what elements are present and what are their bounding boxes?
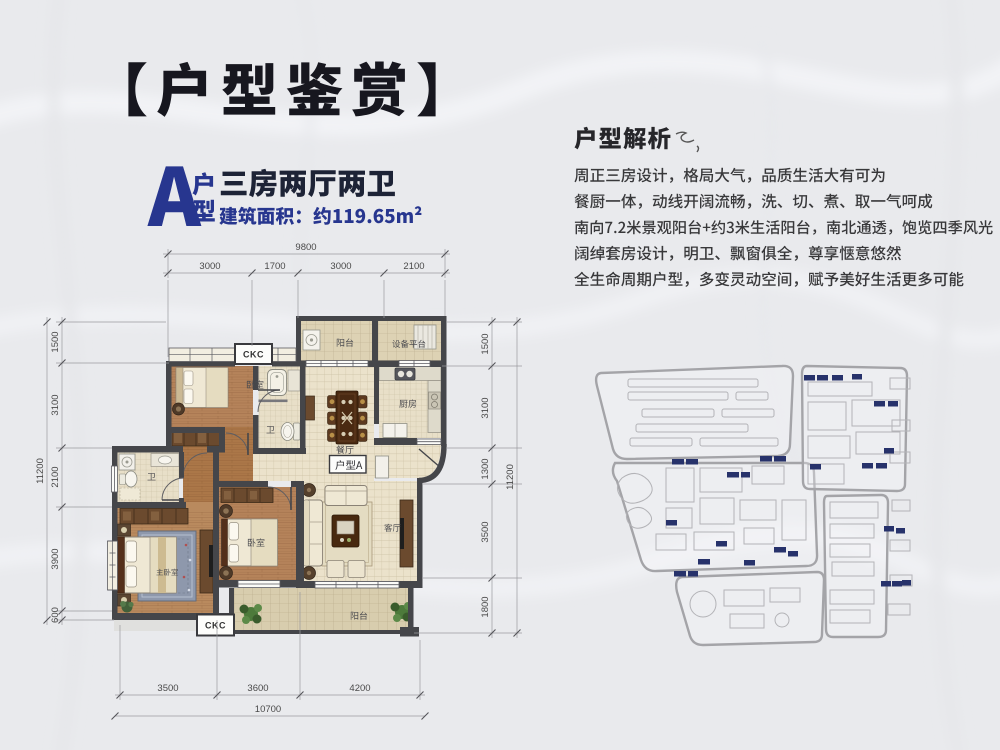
svg-text:3000: 3000 xyxy=(199,261,220,272)
svg-text:3600: 3600 xyxy=(247,683,268,694)
svg-text:3500: 3500 xyxy=(480,521,491,542)
svg-text:3100: 3100 xyxy=(50,394,61,415)
svg-text:3900: 3900 xyxy=(50,548,61,569)
svg-text:11200: 11200 xyxy=(505,464,516,490)
svg-text:2100: 2100 xyxy=(403,261,424,272)
svg-text:11200: 11200 xyxy=(35,458,46,484)
svg-text:1500: 1500 xyxy=(480,333,491,354)
svg-text:3100: 3100 xyxy=(480,397,491,418)
svg-text:600: 600 xyxy=(50,607,61,623)
svg-text:1300: 1300 xyxy=(480,458,491,479)
svg-text:2100: 2100 xyxy=(50,466,61,487)
svg-text:3000: 3000 xyxy=(330,261,351,272)
svg-text:CKC: CKC xyxy=(243,350,264,360)
svg-text:CKC: CKC xyxy=(205,621,226,631)
svg-text:3500: 3500 xyxy=(157,683,178,694)
svg-text:10700: 10700 xyxy=(255,704,281,715)
svg-text:4200: 4200 xyxy=(349,683,370,694)
svg-text:1800: 1800 xyxy=(480,596,491,617)
svg-text:1700: 1700 xyxy=(264,261,285,272)
svg-text:9800: 9800 xyxy=(295,242,316,253)
svg-text:1500: 1500 xyxy=(50,331,61,352)
